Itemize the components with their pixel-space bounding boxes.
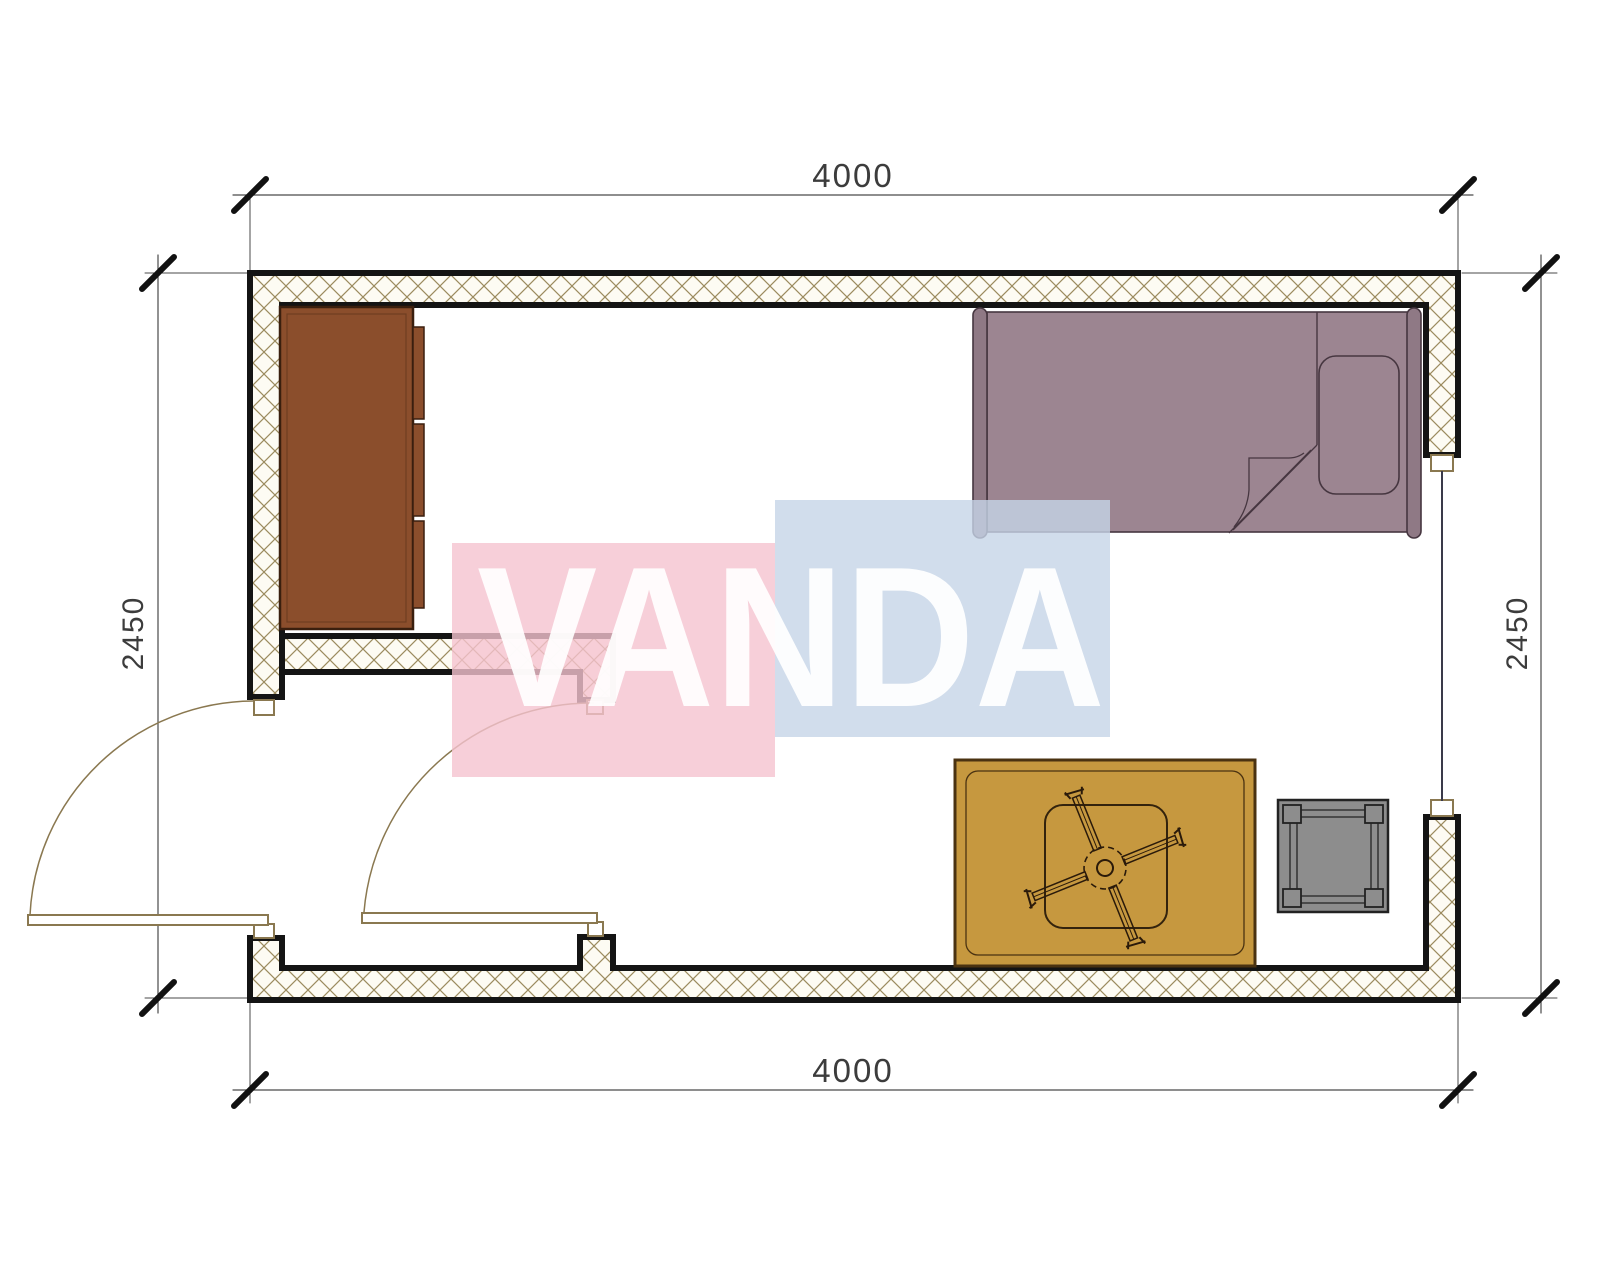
- window-jamb: [1431, 800, 1453, 816]
- watermark-text: VANDA: [477, 526, 1105, 749]
- door-leaf: [362, 913, 597, 923]
- dresser-drawer: [413, 327, 424, 419]
- dimension-right-label: 2450: [1501, 596, 1534, 671]
- door-leaf: [28, 915, 268, 925]
- dresser-drawer: [413, 424, 424, 516]
- bed-pillow: [1319, 356, 1399, 494]
- dimension-right: 2450: [1462, 255, 1557, 1014]
- stool: [1278, 800, 1388, 912]
- dimension-top: 4000: [233, 157, 1474, 270]
- door-jamb: [588, 922, 603, 936]
- stool-leg: [1283, 889, 1301, 907]
- watermark: VANDA: [452, 500, 1110, 777]
- stool-leg: [1283, 805, 1301, 823]
- dimension-bottom-label: 4000: [812, 1052, 893, 1089]
- dresser-drawer: [413, 521, 424, 608]
- dimension-left-label: 2450: [117, 596, 150, 671]
- door-jamb: [254, 924, 274, 938]
- floor-plan-canvas: 4000 4000 2450 2450: [0, 0, 1600, 1280]
- dimension-left: 2450: [117, 255, 247, 1014]
- window-jamb: [1431, 455, 1453, 471]
- bed-footboard: [1407, 308, 1421, 538]
- dresser-body: [280, 307, 413, 629]
- stool-leg: [1365, 889, 1383, 907]
- dimension-top-label: 4000: [812, 157, 893, 194]
- door-jamb: [254, 700, 274, 715]
- floor-plan-page: 4000 4000 2450 2450: [0, 0, 1600, 1280]
- door-swing-arc: [30, 701, 253, 915]
- stool-leg: [1365, 805, 1383, 823]
- dresser: [280, 307, 424, 629]
- dimension-bottom: 4000: [233, 1003, 1474, 1106]
